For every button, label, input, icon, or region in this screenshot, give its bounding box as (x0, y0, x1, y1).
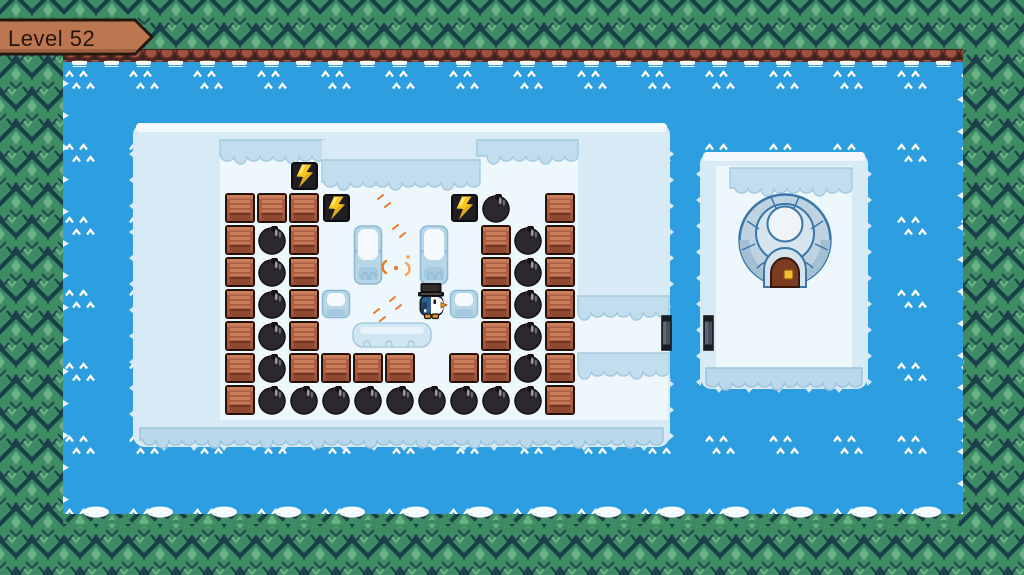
svg-text:Level 52: Level 52 (8, 26, 95, 51)
